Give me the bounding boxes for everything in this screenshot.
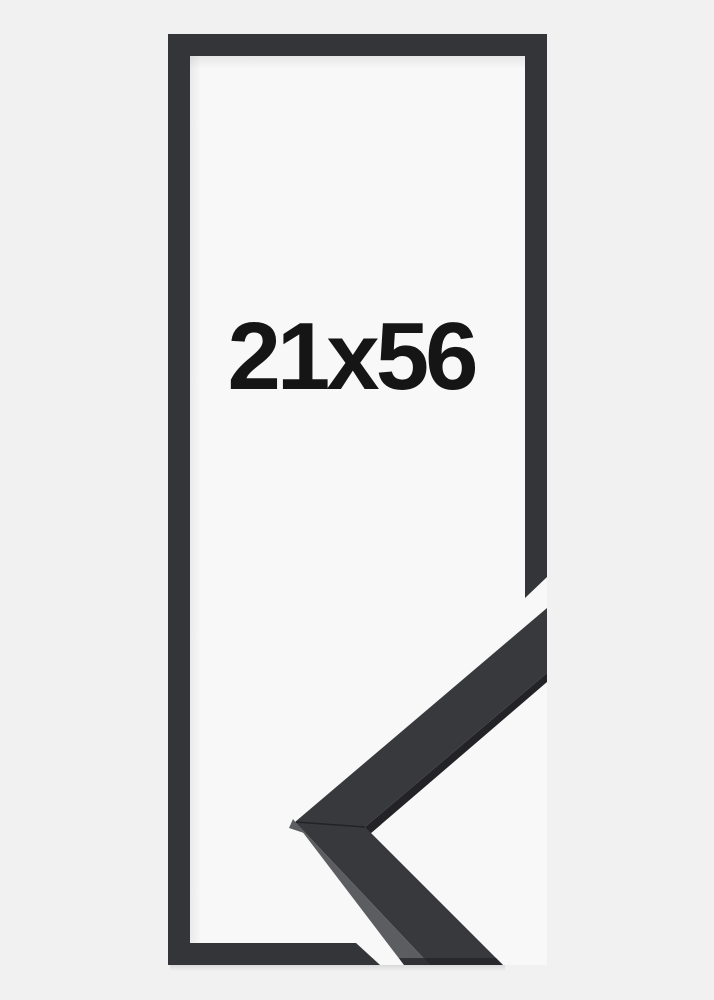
frame-product-image: 21x56: [0, 0, 714, 1000]
frame-product-svg: 21x56: [0, 0, 714, 1000]
drop-shadow-bottom: [170, 965, 505, 971]
corner-sample-baseline-edge: [399, 958, 503, 965]
frame-left-bar: [168, 34, 190, 965]
frame-top-bar: [168, 34, 547, 56]
frame-bottom-bar: [168, 943, 380, 965]
frame-right-bar: [525, 34, 547, 598]
inner-shadow-top: [190, 56, 525, 69]
size-label: 21x56: [228, 303, 476, 410]
inner-shadow-left: [190, 56, 201, 943]
